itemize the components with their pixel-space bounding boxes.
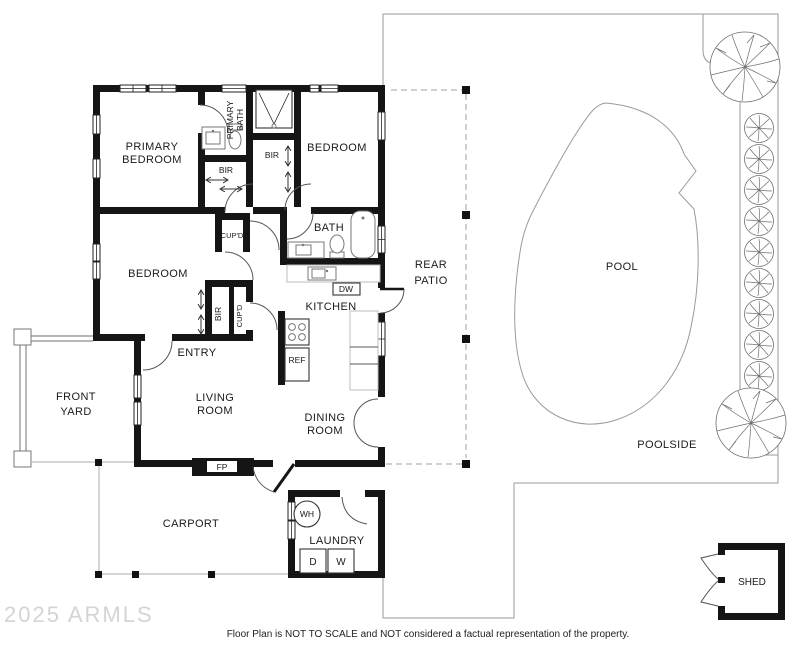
label-living-room-2: ROOM bbox=[197, 405, 233, 417]
footer-disclaimer: Floor Plan is NOT TO SCALE and NOT consi… bbox=[227, 629, 630, 640]
label-washer: W bbox=[336, 557, 346, 568]
label-bir-bedroom: BIR bbox=[265, 150, 279, 160]
label-refrigerator: REF bbox=[289, 355, 306, 365]
label-water-heater: WH bbox=[300, 509, 314, 519]
label-bath: BATH bbox=[314, 222, 344, 234]
label-cupboard-lower: CUP'D bbox=[235, 304, 244, 327]
dining-counter bbox=[350, 311, 378, 390]
label-pool: POOL bbox=[606, 261, 638, 273]
bathtub bbox=[351, 211, 375, 258]
label-bir-primary: BIR bbox=[219, 165, 233, 175]
armls-watermark: 2025 ARMLS bbox=[4, 602, 154, 627]
property-boundary bbox=[383, 14, 778, 618]
tree-top-right bbox=[710, 32, 780, 102]
label-dining-room-2: ROOM bbox=[307, 425, 343, 437]
doors bbox=[143, 105, 718, 606]
shed-doors bbox=[701, 554, 718, 606]
label-shed: SHED bbox=[738, 577, 766, 588]
label-primary-bath-2: BATH bbox=[235, 109, 245, 131]
label-primary-bath-1: PRIMARY bbox=[225, 100, 235, 139]
label-front-yard-2: YARD bbox=[60, 406, 91, 418]
label-kitchen: KITCHEN bbox=[305, 301, 356, 313]
label-carport: CARPORT bbox=[163, 518, 219, 530]
floor-plan: PRIMARY BEDROOM PRIMARY BATH BEDROOM BED… bbox=[0, 0, 800, 648]
floor-plan-canvas: PRIMARY BEDROOM PRIMARY BATH BEDROOM BED… bbox=[0, 0, 800, 648]
kitchen-island bbox=[285, 319, 309, 381]
label-living-room-1: LIVING bbox=[196, 392, 234, 404]
label-bir-hall: BIR bbox=[213, 307, 223, 321]
label-fireplace: FP bbox=[217, 462, 228, 472]
label-dishwasher: DW bbox=[339, 284, 353, 294]
label-primary-bedroom-1: PRIMARY bbox=[126, 141, 179, 153]
label-dining-room-1: DINING bbox=[305, 412, 346, 424]
label-rear-patio-2: PATIO bbox=[414, 275, 447, 287]
label-primary-bedroom-2: BEDROOM bbox=[122, 154, 182, 166]
label-entry: ENTRY bbox=[177, 347, 216, 359]
label-bedroom-upper-right: BEDROOM bbox=[307, 142, 367, 154]
label-dryer: D bbox=[309, 557, 316, 568]
bath-vanity bbox=[288, 242, 324, 258]
landscaping bbox=[710, 32, 786, 458]
label-bedroom-left: BEDROOM bbox=[128, 268, 188, 280]
label-rear-patio-1: REAR bbox=[415, 259, 447, 271]
tree-bottom-right bbox=[716, 388, 786, 458]
label-poolside: POOLSIDE bbox=[637, 439, 696, 451]
bath-toilet bbox=[330, 235, 344, 258]
shower bbox=[256, 90, 292, 128]
label-cupboard-upper: CUP'D bbox=[221, 231, 244, 240]
primary-bath-vanity bbox=[202, 127, 225, 149]
label-laundry: LAUNDRY bbox=[309, 535, 364, 547]
label-front-yard-1: FRONT bbox=[56, 391, 96, 403]
kitchen-counter bbox=[287, 265, 380, 282]
